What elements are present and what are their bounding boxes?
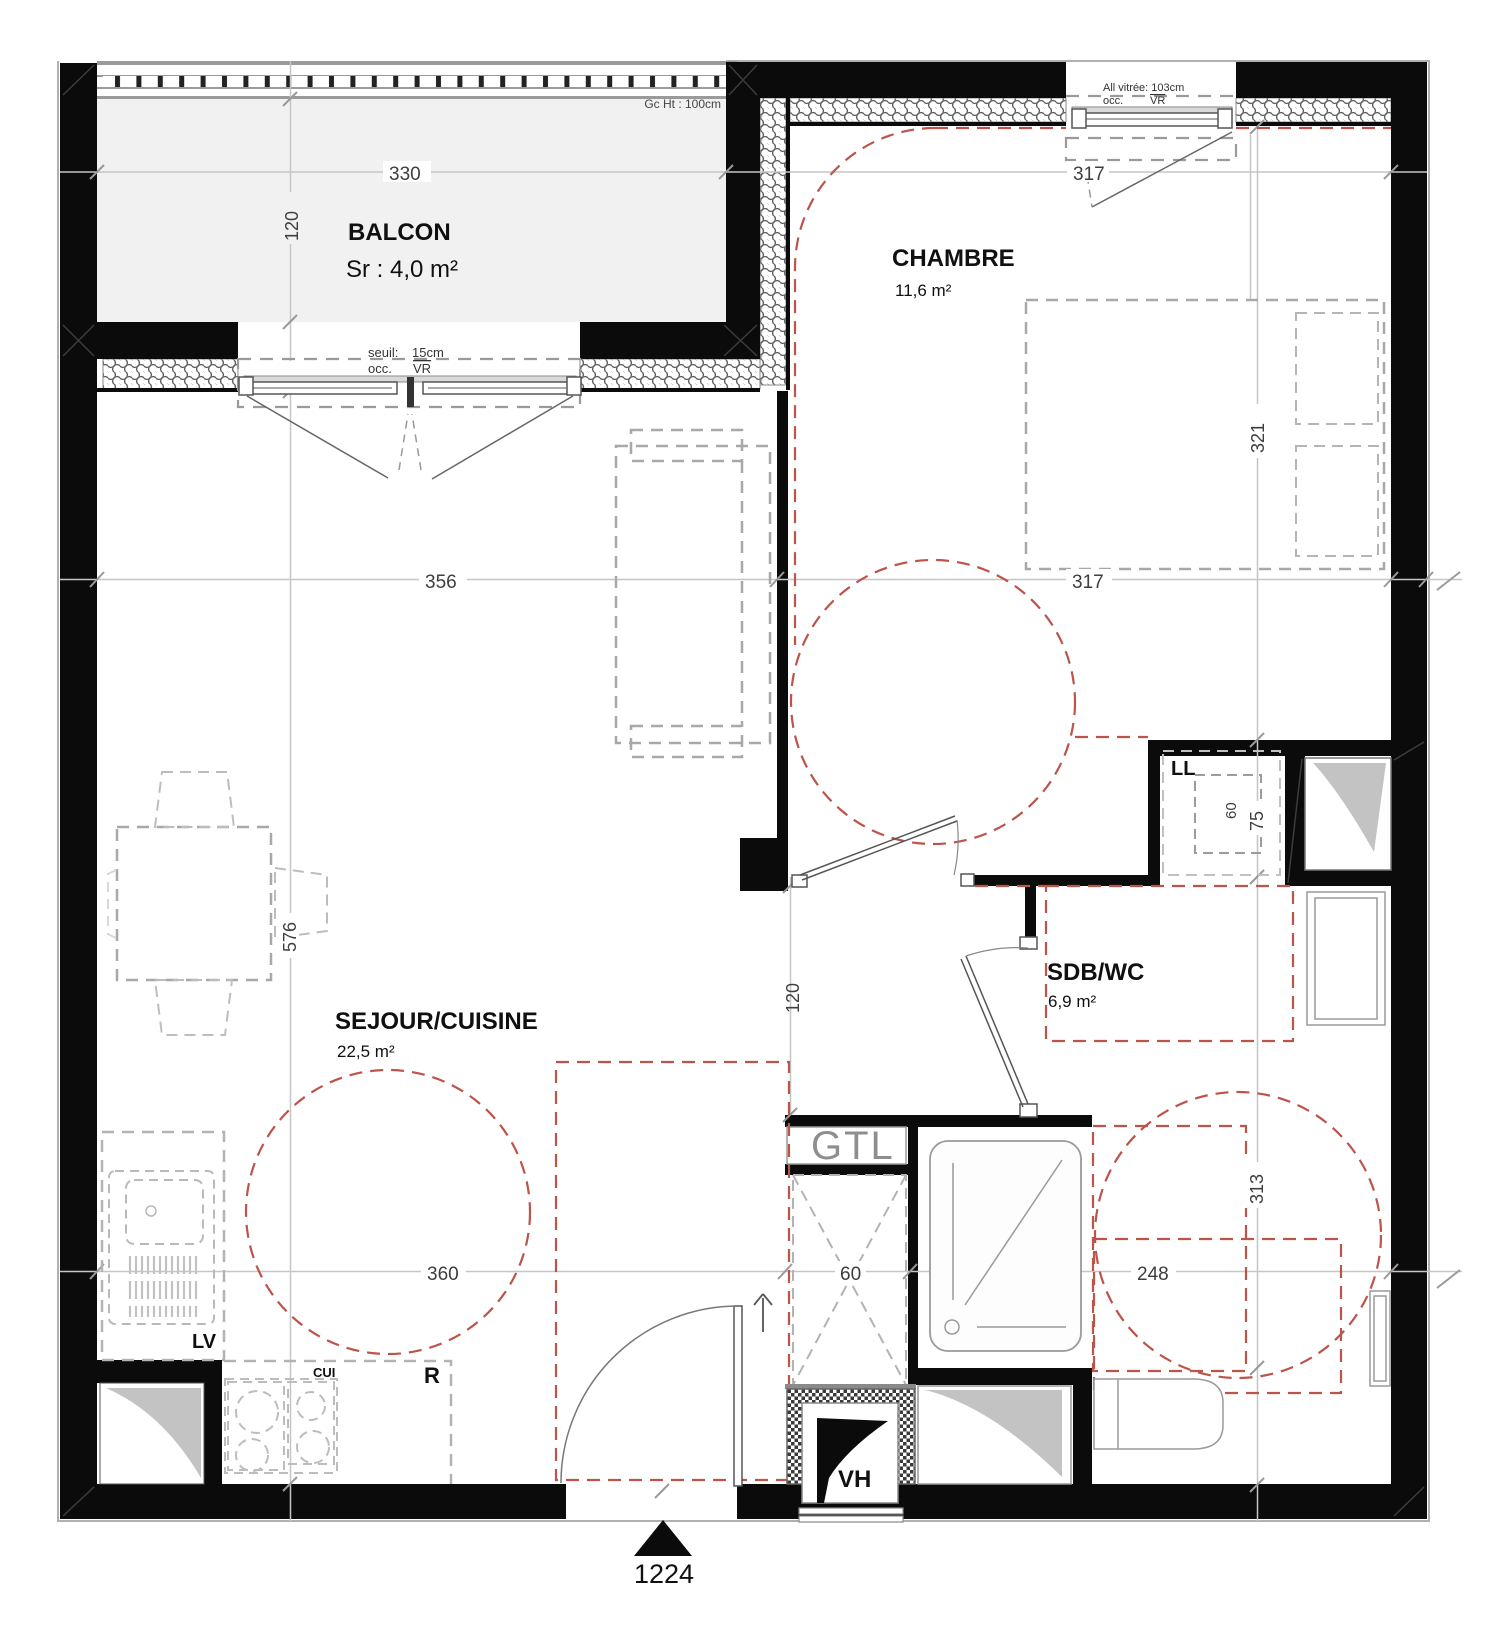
svg-text:VR: VR [1150,95,1165,107]
svg-text:R: R [424,1363,440,1388]
svg-text:occ.: occ. [1103,95,1123,107]
svg-text:Gc Ht : 100cm: Gc Ht : 100cm [644,97,721,111]
svg-text:15cm: 15cm [412,345,444,360]
svg-text:SEJOUR/CUISINE: SEJOUR/CUISINE [335,1008,538,1035]
svg-text:SDB/WC: SDB/WC [1047,959,1144,986]
svg-text:LV: LV [192,1331,217,1353]
svg-text:60: 60 [840,1264,861,1285]
svg-text:313: 313 [1247,1174,1267,1204]
svg-text:317: 317 [1073,164,1105,185]
svg-text:330: 330 [389,164,421,185]
svg-text:CUI: CUI [313,1365,335,1380]
svg-text:1224: 1224 [634,1559,694,1589]
svg-text:22,5 m²: 22,5 m² [337,1042,395,1061]
svg-text:317: 317 [1072,572,1104,593]
svg-text:120: 120 [783,983,803,1013]
svg-text:120: 120 [282,211,302,241]
svg-text:seuil:: seuil: [368,345,398,360]
svg-text:LL: LL [1171,758,1195,780]
svg-text:BALCON: BALCON [348,219,451,246]
svg-text:GTL: GTL [811,1124,895,1168]
svg-text:6,9 m²: 6,9 m² [1048,992,1097,1011]
svg-text:321: 321 [1248,423,1268,453]
svg-text:576: 576 [280,922,300,952]
svg-text:occ.: occ. [368,361,392,376]
svg-text:11,6 m²: 11,6 m² [895,281,952,300]
svg-text:356: 356 [425,572,457,593]
svg-text:75: 75 [1247,811,1267,831]
svg-text:60: 60 [1223,802,1240,819]
svg-text:VH: VH [838,1466,871,1493]
svg-text:248: 248 [1137,1264,1169,1285]
svg-text:Sr : 4,0 m²: Sr : 4,0 m² [346,256,458,283]
svg-text:360: 360 [427,1264,459,1285]
svg-text:VR: VR [413,361,431,376]
svg-text:CHAMBRE: CHAMBRE [892,245,1015,272]
svg-text:All vitrée: 103cm: All vitrée: 103cm [1103,82,1184,94]
